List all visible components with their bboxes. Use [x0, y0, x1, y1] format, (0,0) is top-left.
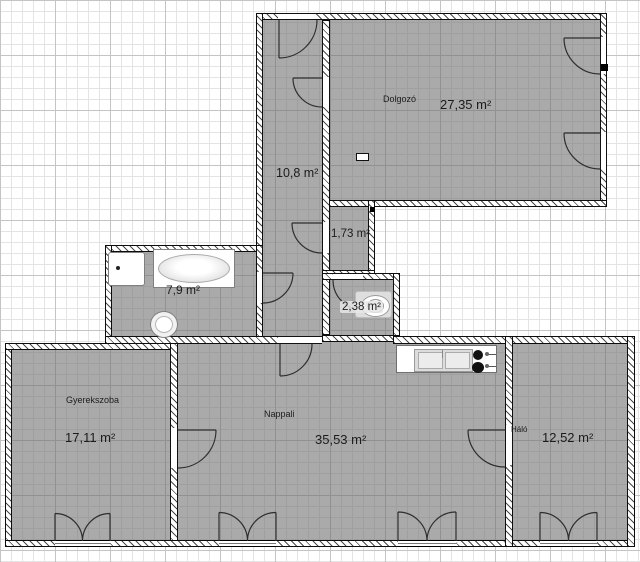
- room-area-label: 17,11 m²: [65, 430, 115, 445]
- door-arc: [564, 133, 600, 169]
- sink-basin-icon: [418, 352, 443, 369]
- door-arc: [178, 430, 216, 468]
- kitchen-sink-icon: [414, 349, 473, 372]
- door-arc: [293, 78, 322, 107]
- shower-tray-icon[interactable]: [108, 252, 145, 286]
- drain-icon: [116, 266, 120, 270]
- stove-knob-icon: [487, 366, 496, 367]
- sink-basin-icon: [445, 352, 470, 369]
- room-area-label: 12,52 m²: [542, 430, 593, 445]
- room-name-label: Nappali: [264, 409, 295, 419]
- bathtub-basin-icon: [158, 254, 230, 283]
- door-arc: [280, 344, 312, 376]
- door-window-arcs-layer: [0, 0, 640, 562]
- kitchen-counter-icon[interactable]: [396, 345, 497, 373]
- room-area-label: 35,53 m²: [315, 432, 366, 447]
- room-area-label: 10,8 m²: [276, 166, 318, 180]
- washbasin-bowl-icon: [155, 316, 173, 333]
- room-area-label: 2,38 m²: [340, 301, 383, 313]
- room-area-label: 27,35 m²: [440, 97, 491, 112]
- floor-plan-canvas: Dolgozó 27,35 m² 10,8 m² 1,73 m² 2,38 m²…: [0, 0, 640, 562]
- door-arc: [468, 430, 505, 467]
- room-name-label: Háló: [511, 425, 527, 434]
- room-name-label: Dolgozó: [383, 94, 416, 104]
- room-area-label: 7,9 m²: [166, 283, 200, 297]
- door-arc: [263, 273, 293, 303]
- door-handle-icon: [370, 207, 375, 212]
- room-name-label: Gyerekszoba: [66, 395, 119, 405]
- faucet-icon: [442, 350, 443, 358]
- washbasin-icon[interactable]: [150, 311, 178, 338]
- burner-icon: [472, 362, 484, 373]
- door-arc: [279, 20, 317, 58]
- window-casement-arc: [219, 513, 276, 542]
- radiator-icon[interactable]: [356, 153, 369, 161]
- burner-icon: [473, 350, 483, 360]
- door-arc: [564, 38, 600, 74]
- window-casement-arc: [540, 513, 597, 542]
- window-casement-arc: [55, 514, 110, 542]
- window-casement-arc: [398, 512, 456, 541]
- door-handle-icon: [601, 64, 608, 71]
- room-area-label: 1,73 m²: [331, 228, 370, 240]
- stove-knob-icon: [487, 354, 496, 355]
- door-arc: [292, 223, 322, 253]
